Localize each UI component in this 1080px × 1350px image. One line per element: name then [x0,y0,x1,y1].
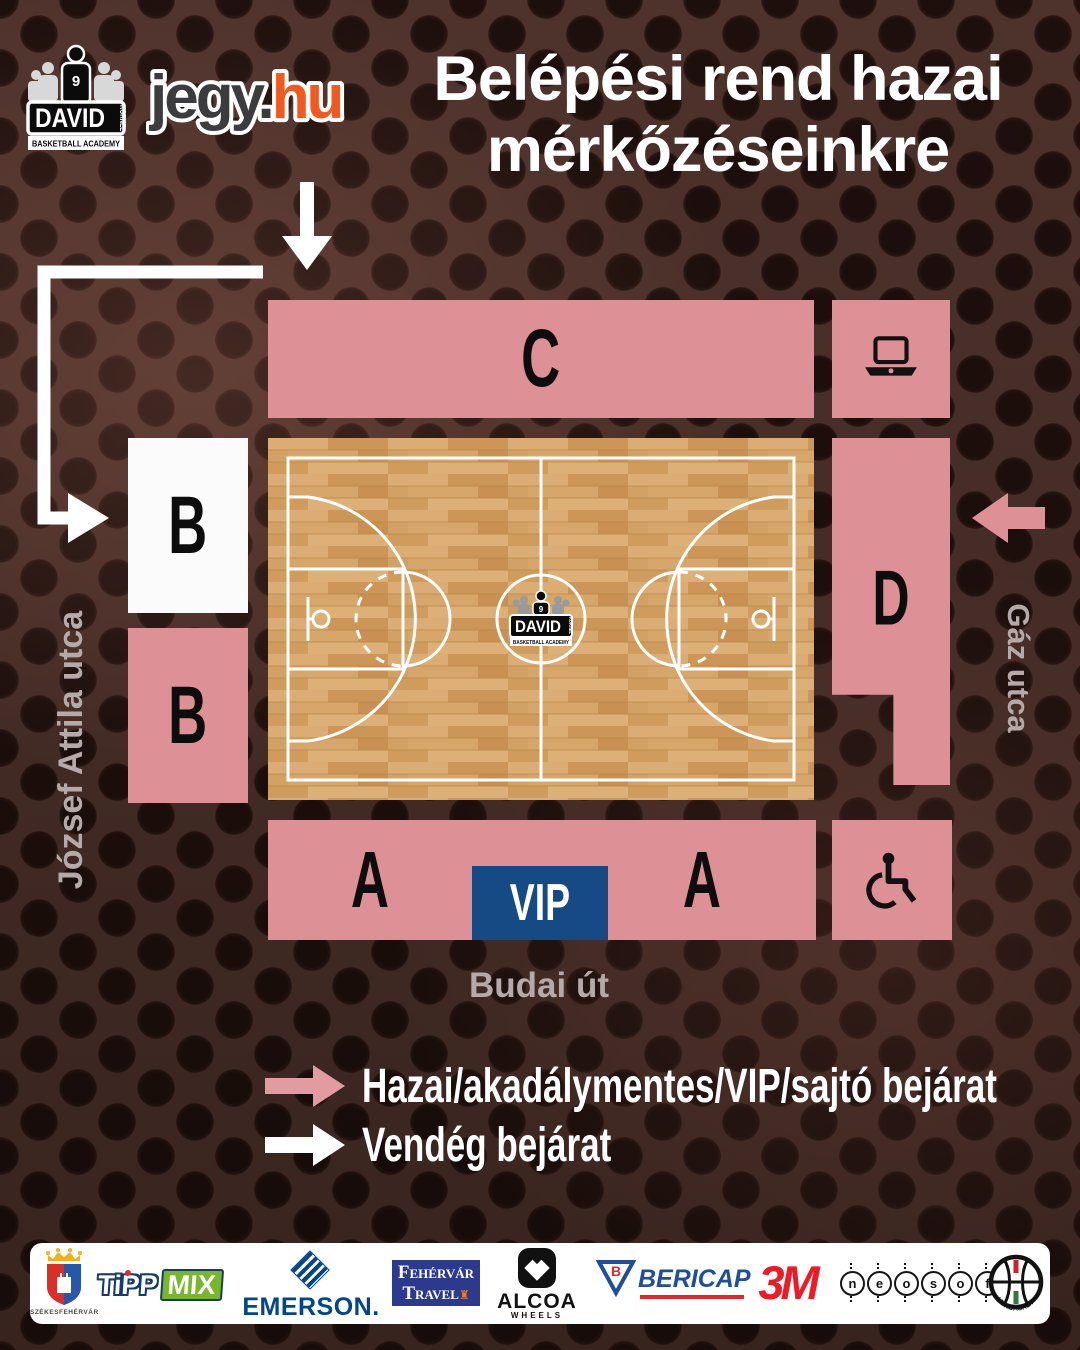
threeM-logo: 3M [752,1255,822,1310]
legend-guest-arrow-icon [263,1122,347,1168]
bericap-triangle-icon: B [596,1259,636,1297]
jegy-logo-part1: jegy. [149,63,272,132]
ft-line2-initial: T [402,1283,415,1304]
neosoft-letter: e [867,1271,892,1296]
section-a-left-label: A [351,834,389,926]
section-c-label: C [521,312,560,406]
neosoft-letter: s [921,1271,946,1296]
ft-line1-rest: EHÉRVÁR [410,1266,475,1281]
accessible-seating-box [832,820,952,940]
tippmix-part2: MIX [159,1269,223,1301]
neosoft-letter: n [840,1271,865,1296]
section-b-upper: B [128,438,248,613]
legend-guest-label: Vendég bejárat [362,1122,611,1170]
neosoft-letter: o [948,1271,973,1296]
laptop-icon [862,336,920,382]
section-b-lower-label: B [168,669,207,763]
bericap-label: BERICAP [638,1265,748,1294]
bericap-underline [640,1295,744,1299]
emerson-logo: EMERSON. [231,1293,391,1322]
jegy-hu-logo: jegy.hu [146,48,372,140]
david-logo-name: DAVID [35,103,105,133]
ft-crown-icon: ♜ [459,1288,470,1302]
poster-title-line2: mérkőzéseinkre [390,115,1046,186]
svg-text:jegy.hu: jegy.hu [149,63,341,132]
vip-label: VIP [510,873,570,933]
court-logo-name: DAVID [515,617,561,636]
street-label-budai-ut: Budai út [389,966,689,1006]
legend-home-label: Hazai/akadálymentes/VIP/sajtó bejárat [362,1063,997,1111]
szekesfehervar-crest-icon [40,1247,88,1307]
tippmix-logo: TiPP MIX [97,1269,224,1301]
section-c: C [268,300,814,418]
neosoft-letter: o [894,1271,919,1296]
vip-section: VIP [472,866,608,940]
david-logo-academy: BASKETBALL ACADEMY [32,140,121,149]
david-kornel-academy-logo: 9 DAVID KORNEL BASKETBALL ACADEMY [24,34,128,156]
arena-entry-poster: 9 DAVID KORNEL BASKETBALL ACADEMY jegy.h… [0,0,1080,1350]
ft-line2-rest: RAVEL [415,1287,459,1302]
court-logo-surname: KORNEL [567,617,573,634]
section-b-lower: B [128,628,248,803]
sponsor-bar: SZÉKESFEHÉRVÁR TiPP MIX EMERSON. FEHÉRVÁ… [30,1243,1050,1324]
home-entrance-left-arrow-icon [968,490,1048,546]
street-label-jozsef-attila-utca: József Attila utca [51,580,91,920]
poster-title: Belépési rend hazai mérkőzéseinkre [390,44,1046,186]
bericap-b: B [611,1263,621,1279]
fehervar-travel-logo: FEHÉRVÁR TRAVEL♜ [392,1260,480,1306]
basketball-court: 9 DAVID KORNEL BASKETBALL ACADEMY [268,438,814,800]
legend-home-arrow-icon [263,1063,347,1109]
court-logo-academy: BASKETBALL ACADEMY [513,640,569,646]
ft-line1-initial: F [398,1262,410,1283]
wheelchair-icon [863,850,921,910]
alcoa-sub-label: WHEELS [476,1311,598,1320]
poster-title-line1: Belépési rend hazai [390,44,1046,115]
jegy-logo-part2: hu [272,63,342,132]
szekesfehervar-caption: SZÉKESFEHÉRVÁR [30,1309,88,1316]
section-d-label: D [872,553,909,644]
guest-entrance-down-arrow-icon [280,180,334,272]
hunbasket-logo: HUNBASKET [987,1253,1045,1315]
jersey-number: 9 [72,73,80,90]
section-a-right-label: A [683,834,721,926]
press-media-box [832,300,950,418]
emerson-diamond-icon [290,1250,330,1290]
street-label-gaz-utca: Gáz utca [1000,588,1036,748]
alcoa-mark-icon [518,1248,556,1288]
david-logo-surname: KORNEL [118,105,127,131]
court-logo-number: 9 [539,605,544,614]
section-b-upper-label: B [168,479,207,573]
